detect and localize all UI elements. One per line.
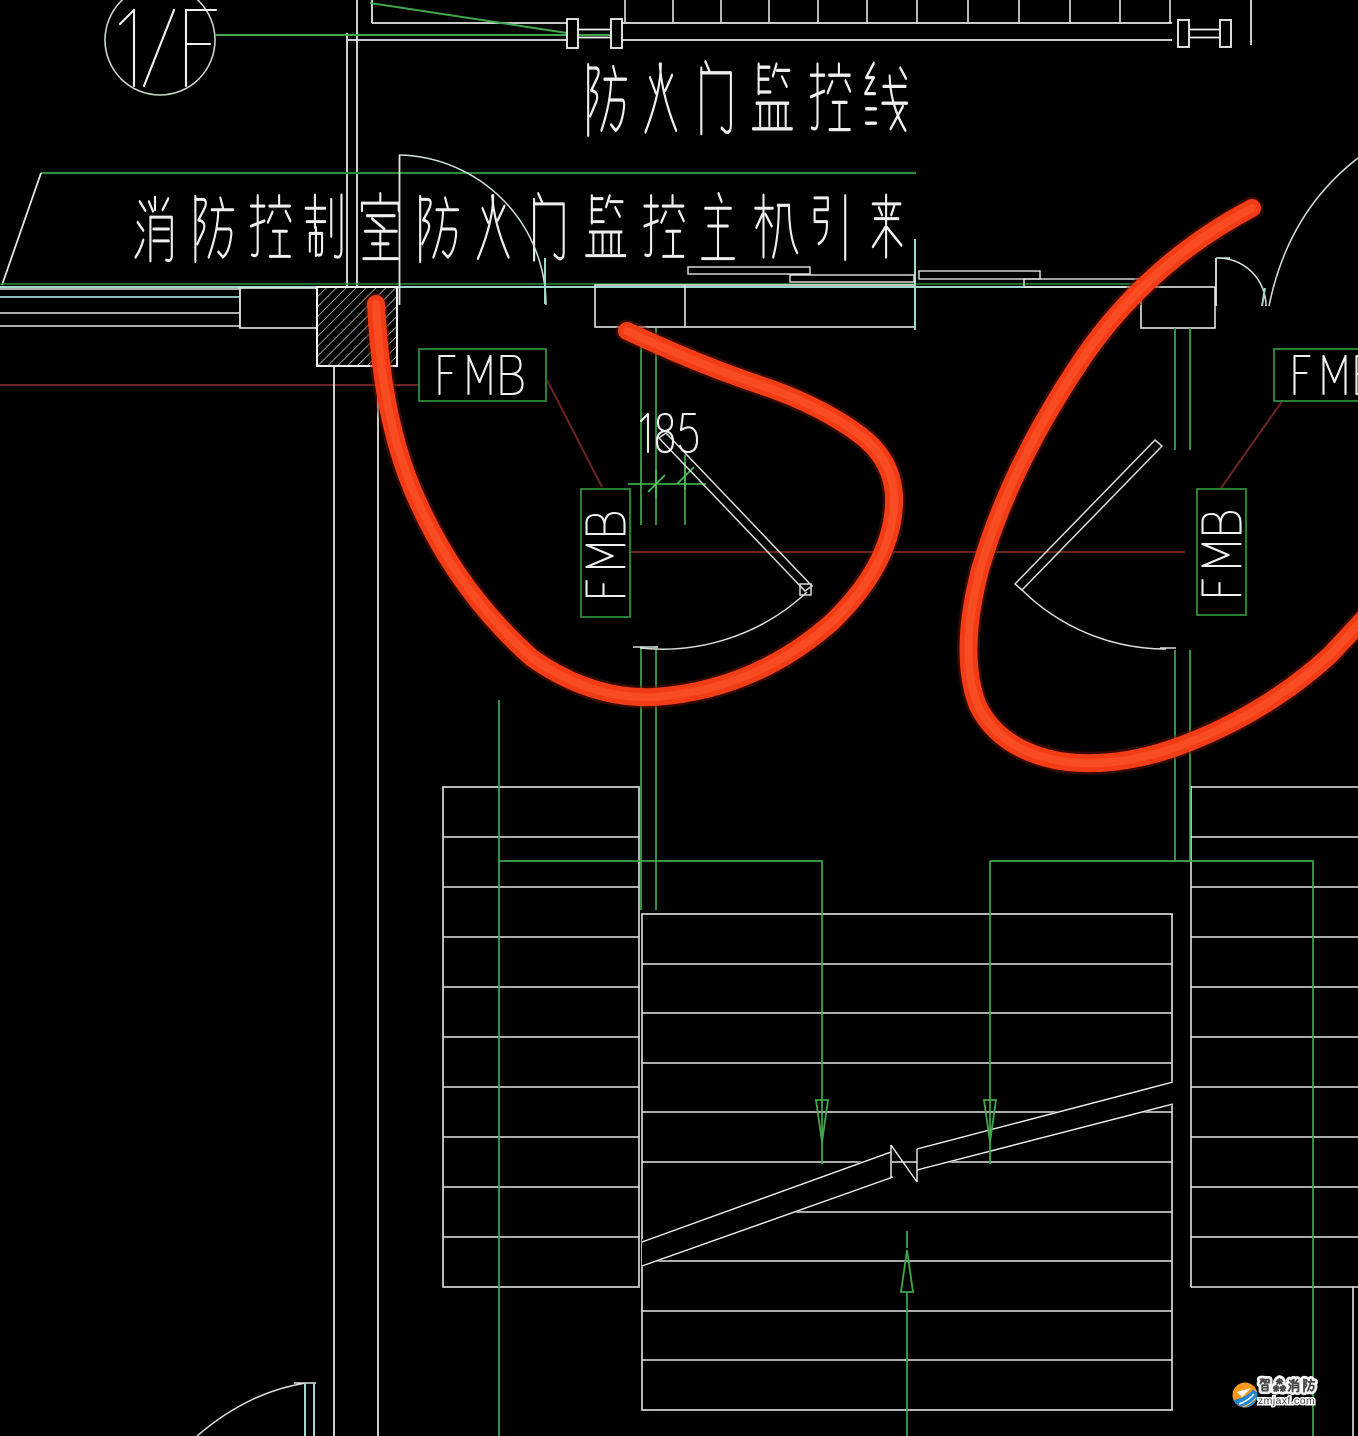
svg-text:zmjaxf.com: zmjaxf.com [1258, 1395, 1315, 1407]
